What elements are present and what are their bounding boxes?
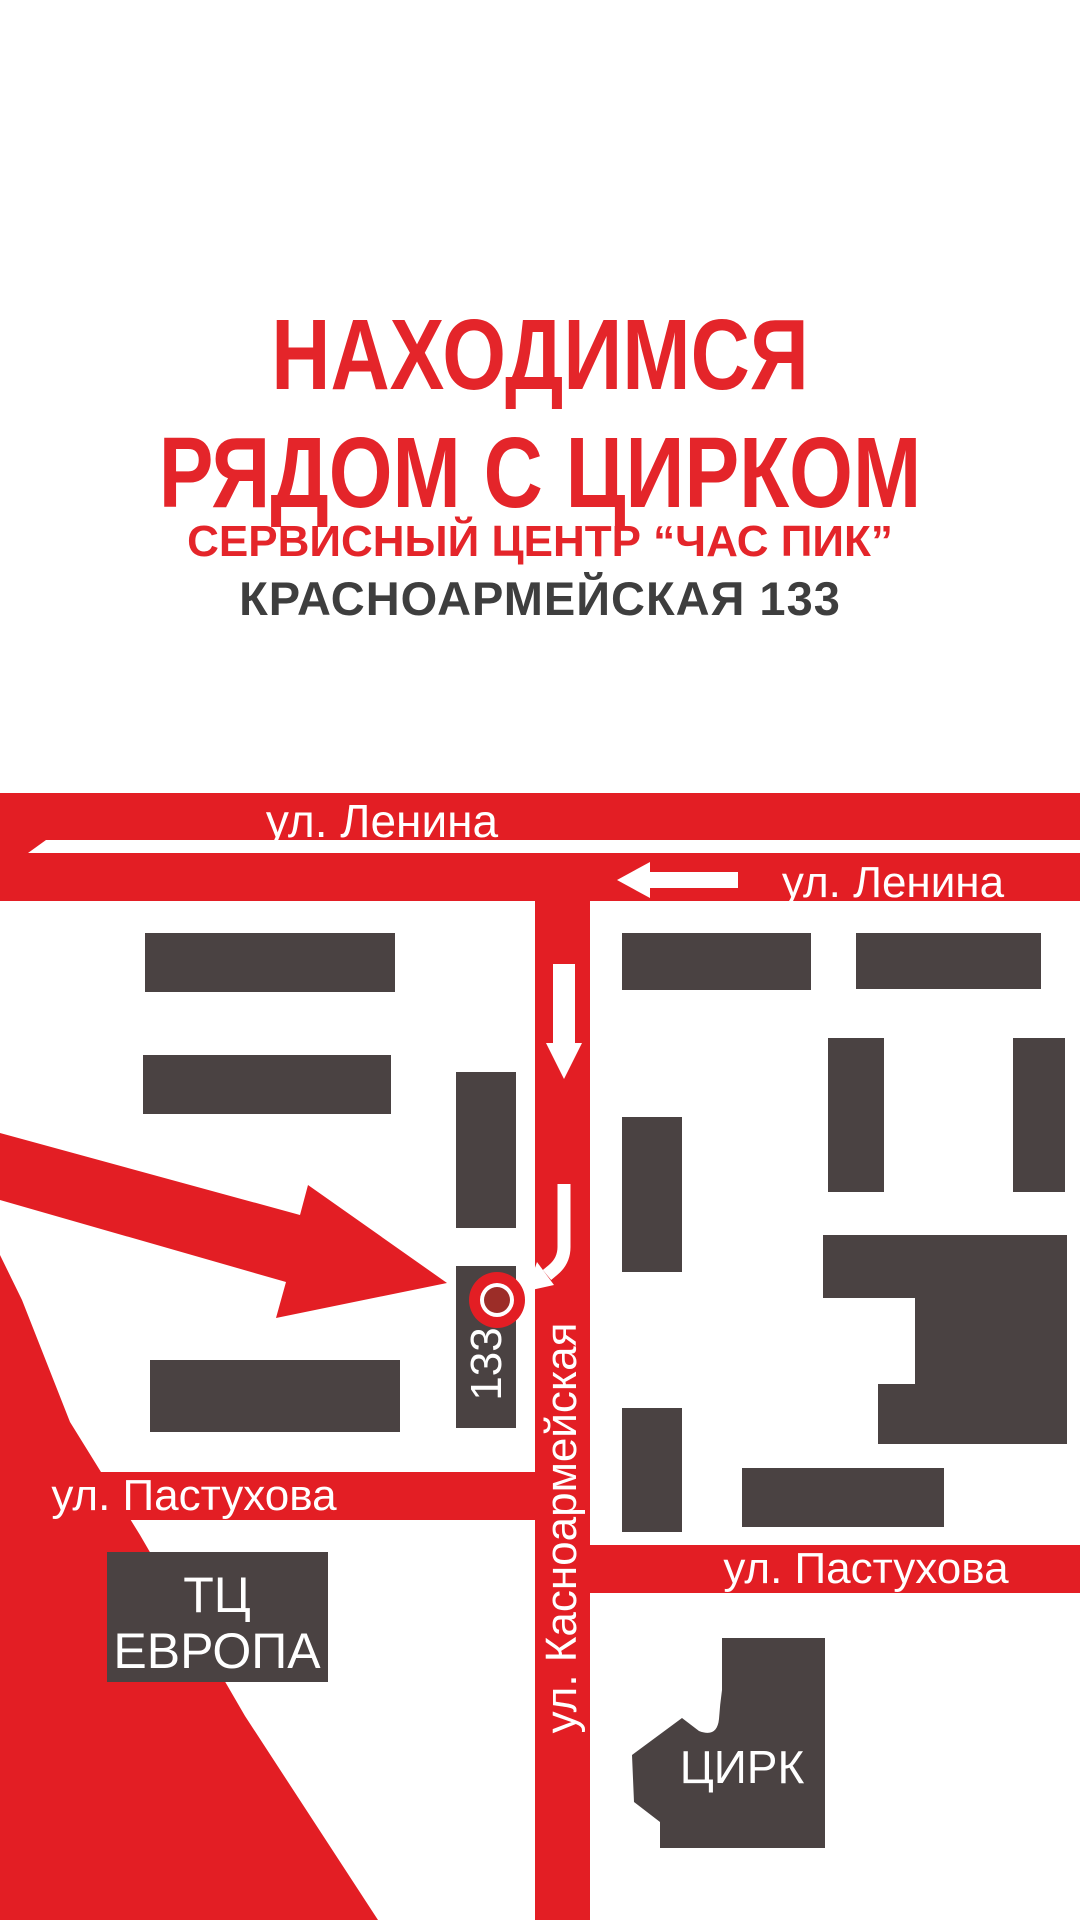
building xyxy=(828,1038,884,1192)
marker-center-dot xyxy=(484,1287,510,1313)
direction-arrow xyxy=(0,1133,447,1318)
street-divider-line xyxy=(28,840,1080,853)
mall-label-line2: ЕВРОПА xyxy=(113,1623,321,1679)
poster: НАХОДИМСЯ РЯДОМ С ЦИРКОМ СЕРВИСНЫЙ ЦЕНТР… xyxy=(0,0,1080,1920)
building xyxy=(456,1072,516,1228)
building xyxy=(145,933,395,992)
building xyxy=(622,933,811,990)
street-label-lenina-right: ул. Ленина xyxy=(782,858,1005,907)
building xyxy=(742,1468,944,1527)
street-label-pastukhova-right: ул. Пастухова xyxy=(723,1544,1009,1593)
building xyxy=(1013,1038,1065,1192)
street-label-krasnoarmeyskaya: ул. Касноармейская xyxy=(537,1323,586,1734)
building xyxy=(622,1408,682,1532)
street-label-pastukhova-left: ул. Пастухова xyxy=(51,1471,337,1520)
building xyxy=(143,1055,391,1114)
location-marker xyxy=(469,1272,525,1328)
building xyxy=(150,1360,400,1432)
location-map: ул. Ленина ул. Ленина ул. Пастухова ул. … xyxy=(0,0,1080,1920)
building xyxy=(856,933,1041,989)
circus-label: ЦИРК xyxy=(680,1741,805,1793)
building-notched xyxy=(823,1235,1067,1444)
street-label-lenina-left: ул. Ленина xyxy=(266,795,499,847)
building-number-label: 133 xyxy=(462,1327,511,1400)
building xyxy=(622,1117,682,1272)
mall-label-line1: ТЦ xyxy=(183,1567,251,1623)
